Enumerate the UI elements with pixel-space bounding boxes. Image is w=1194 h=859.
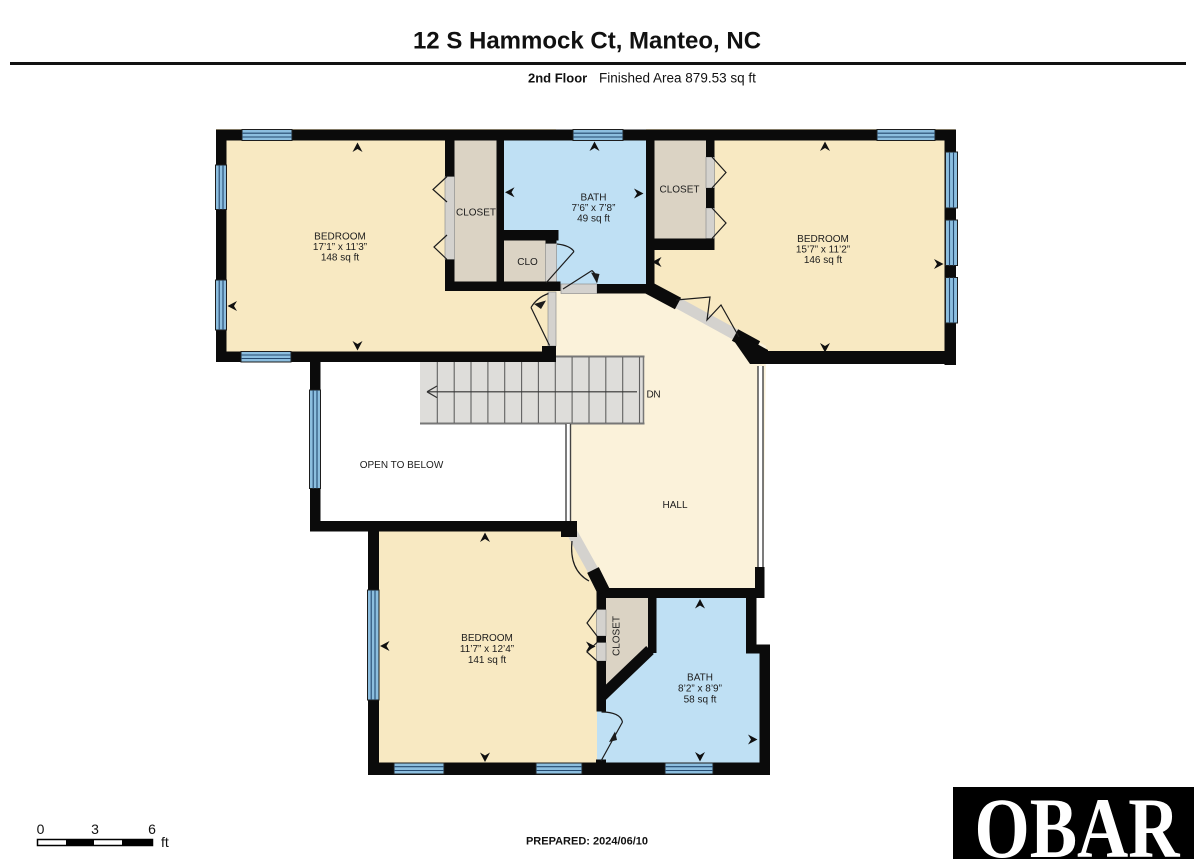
svg-text:17’1” x 11’3”: 17’1” x 11’3” <box>313 242 367 253</box>
svg-text:12 S Hammock Ct, Manteo, NC: 12 S Hammock Ct, Manteo, NC <box>413 28 761 55</box>
svg-text:BATH: BATH <box>687 673 713 684</box>
svg-text:PREPARED: 2024/06/10: PREPARED: 2024/06/10 <box>526 836 648 848</box>
svg-text:Finished Area 879.53 sq ft: Finished Area 879.53 sq ft <box>599 71 756 86</box>
svg-text:7’6” x 7’8”: 7’6” x 7’8” <box>572 203 616 214</box>
svg-text:OBAR: OBAR <box>975 780 1181 859</box>
svg-text:0: 0 <box>37 821 45 837</box>
svg-text:148 sq ft: 148 sq ft <box>321 253 360 264</box>
svg-text:HALL: HALL <box>662 500 687 511</box>
svg-text:ft: ft <box>161 834 169 850</box>
svg-text:146 sq ft: 146 sq ft <box>804 255 843 266</box>
svg-text:6: 6 <box>148 821 156 837</box>
svg-text:49 sq ft: 49 sq ft <box>577 214 610 225</box>
svg-text:8’2” x 8’9”: 8’2” x 8’9” <box>678 684 722 695</box>
svg-text:DN: DN <box>647 390 661 401</box>
svg-text:CLOSET: CLOSET <box>659 185 699 196</box>
svg-text:2nd Floor: 2nd Floor <box>528 71 587 86</box>
svg-text:3: 3 <box>91 821 99 837</box>
svg-text:CLO: CLO <box>517 257 538 268</box>
svg-text:BEDROOM: BEDROOM <box>797 234 849 245</box>
svg-text:CLOSET: CLOSET <box>612 616 623 656</box>
svg-text:BEDROOM: BEDROOM <box>461 633 513 644</box>
svg-text:CLOSET: CLOSET <box>456 208 496 219</box>
svg-text:BEDROOM: BEDROOM <box>314 232 366 243</box>
svg-text:58 sq ft: 58 sq ft <box>684 695 717 706</box>
svg-text:BATH: BATH <box>581 193 607 204</box>
svg-text:15’7” x 11’2”: 15’7” x 11’2” <box>796 245 850 256</box>
svg-text:141 sq ft: 141 sq ft <box>468 655 507 666</box>
svg-text:11’7” x 12’4”: 11’7” x 12’4” <box>460 644 514 655</box>
svg-text:OPEN TO BELOW: OPEN TO BELOW <box>360 460 444 471</box>
